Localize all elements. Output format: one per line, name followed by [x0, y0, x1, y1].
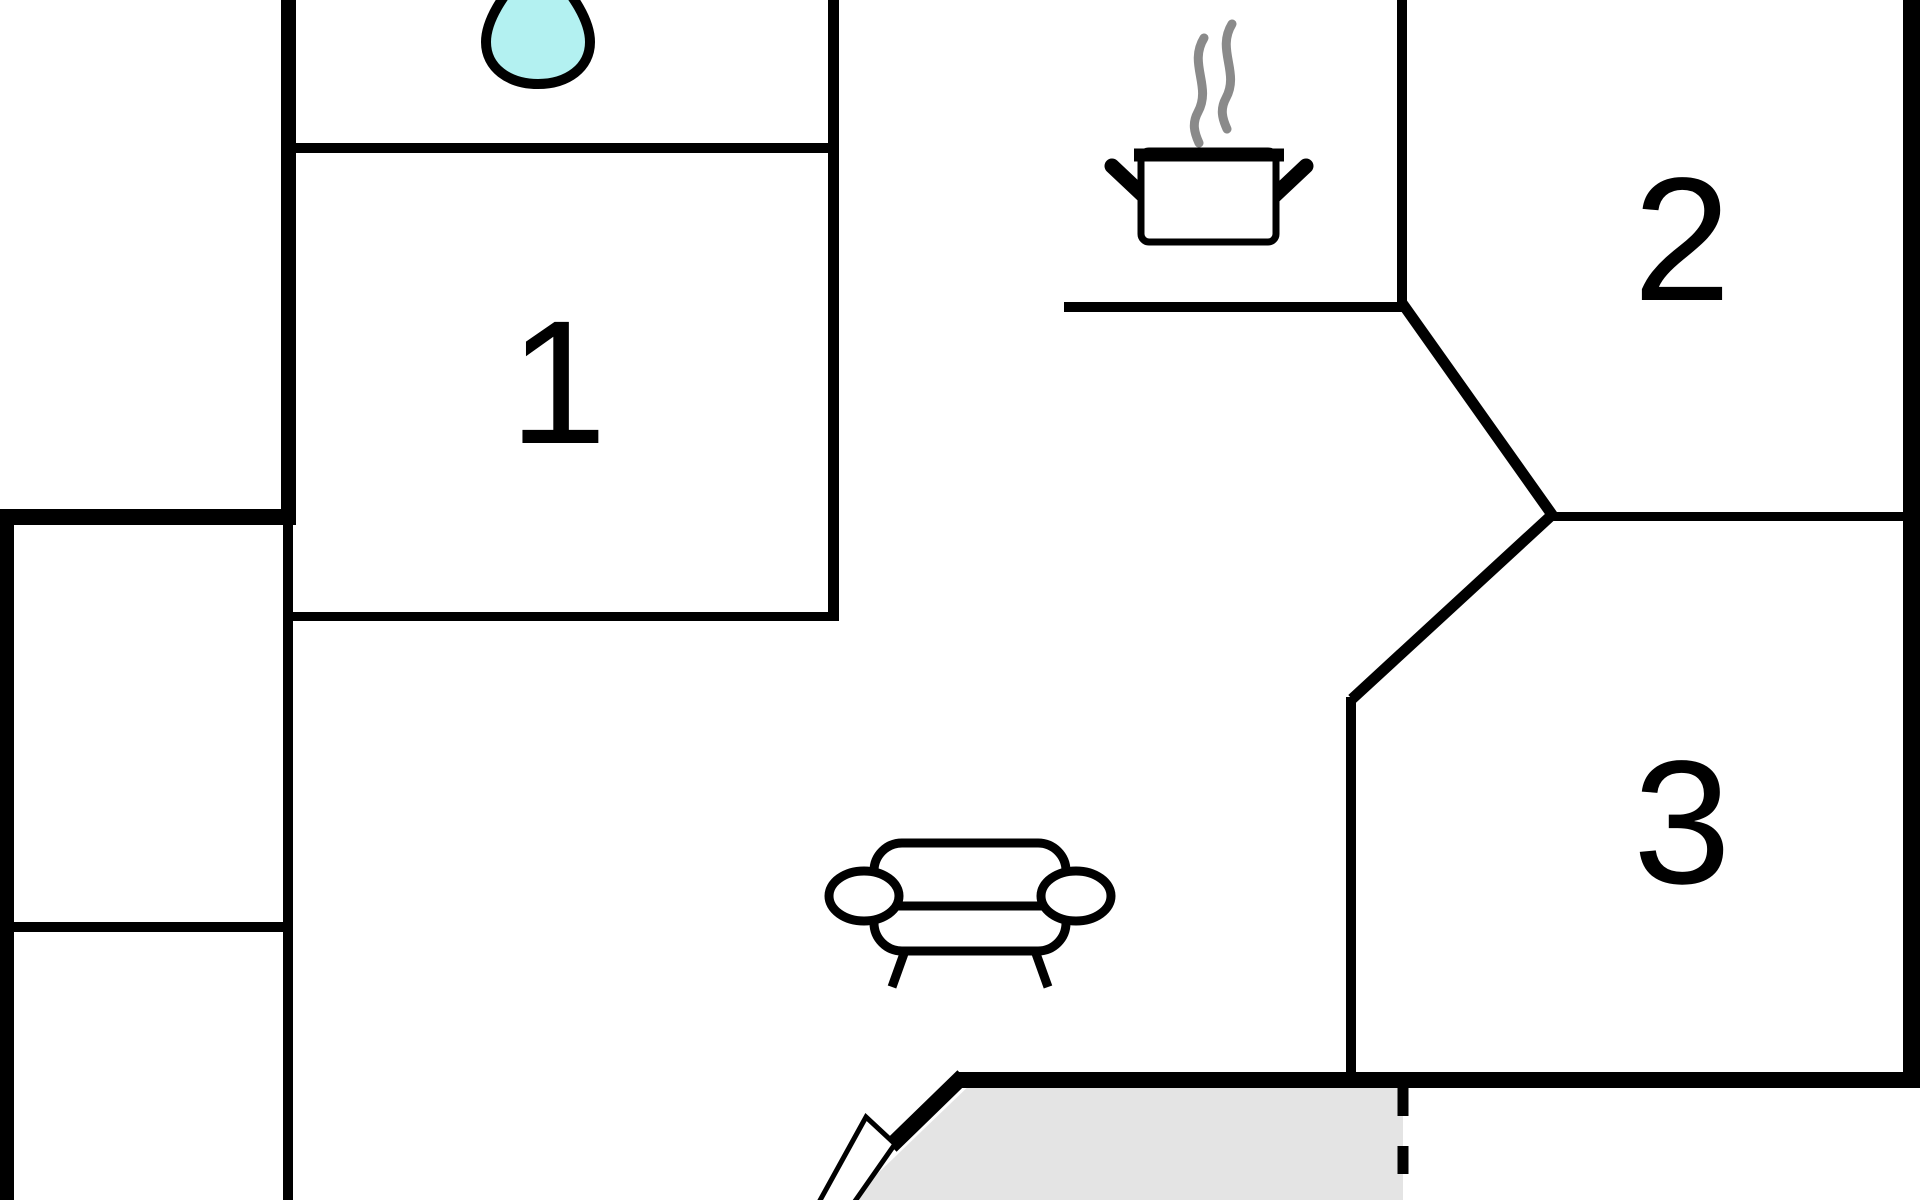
wall-right-outer [1903, 0, 1920, 1088]
wall-left-outer-vertical [0, 509, 14, 1200]
room-2-label: 2 [1633, 142, 1731, 338]
steam-wave-left [1194, 38, 1204, 143]
wall-kitchen-counter [1064, 302, 1405, 312]
wall-room2-room3-divider [1549, 512, 1909, 521]
steam-icon [1194, 24, 1232, 143]
wall-room1-right [828, 0, 839, 621]
wall-top-left-outer-vertical [281, 0, 296, 525]
walls [0, 0, 1920, 1200]
room-3-label: 3 [1633, 725, 1731, 921]
sofa-armrest-left [829, 871, 899, 921]
sofa-armrest-right [1041, 871, 1111, 921]
wall-lines [891, 303, 1553, 1200]
wall-terrace-top [957, 1072, 1920, 1088]
floor-plan: 1 2 3 [0, 0, 1920, 1200]
sofa-icon [829, 843, 1111, 987]
wall-kitchen-diagonal [1402, 303, 1553, 516]
room-labels: 1 2 3 [509, 142, 1731, 921]
floor-plan-canvas: 1 2 3 [0, 0, 1920, 1200]
room-1-label: 1 [509, 285, 607, 481]
cooking-pot-icon [1112, 151, 1306, 242]
wall-bathroom-bottom [288, 143, 837, 153]
steam-wave-right [1222, 24, 1232, 129]
wall-room1-bottom [288, 612, 838, 621]
pot-body [1141, 151, 1276, 242]
water-drop-shape [486, 0, 590, 84]
wall-left-rooms-divider [0, 922, 288, 932]
wall-room3-diagonal [1352, 514, 1553, 699]
wall-room3-left-vertical [1346, 697, 1356, 1078]
wall-left-inner-vertical [283, 525, 293, 1200]
wall-left-outer-horizontal [0, 509, 296, 525]
water-drop-icon [486, 0, 590, 84]
wall-kitchen-right-vertical [1397, 0, 1407, 307]
